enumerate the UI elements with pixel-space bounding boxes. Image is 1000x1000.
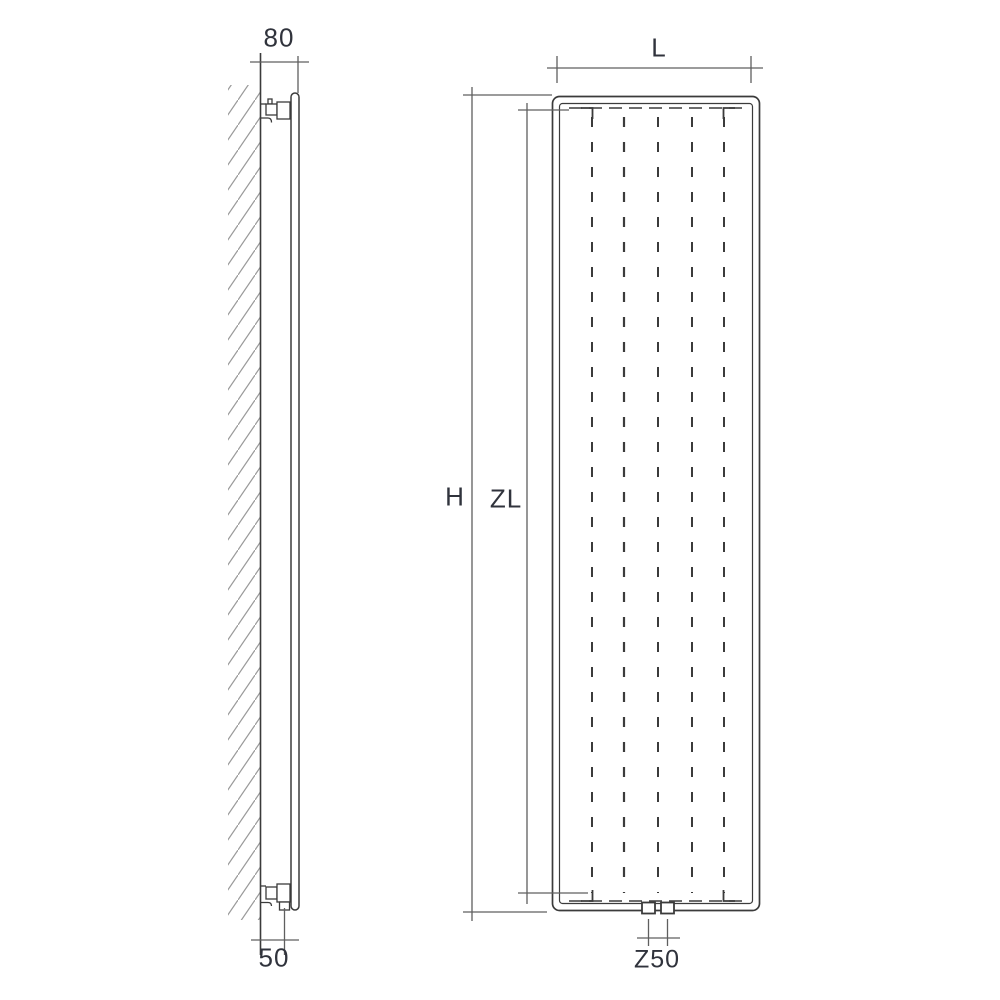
top-bracket [260,99,290,123]
label-width-L: L [651,33,666,64]
label-connection-Z50: Z50 [634,946,680,975]
label-inner-height-ZL: ZL [490,484,522,515]
label-height-H: H [445,482,465,513]
dim-connection-Z50 [637,919,680,946]
side-panel [291,93,299,910]
label-offset-50: 50 [259,943,290,974]
side-view [228,53,309,955]
radiator-front-panel [553,97,760,911]
bottom-bracket [260,884,290,910]
technical-drawing-canvas: 80 L H ZL 50 Z50 [0,0,1000,1000]
label-depth-80: 80 [264,23,295,54]
wall-hatching [228,53,261,955]
